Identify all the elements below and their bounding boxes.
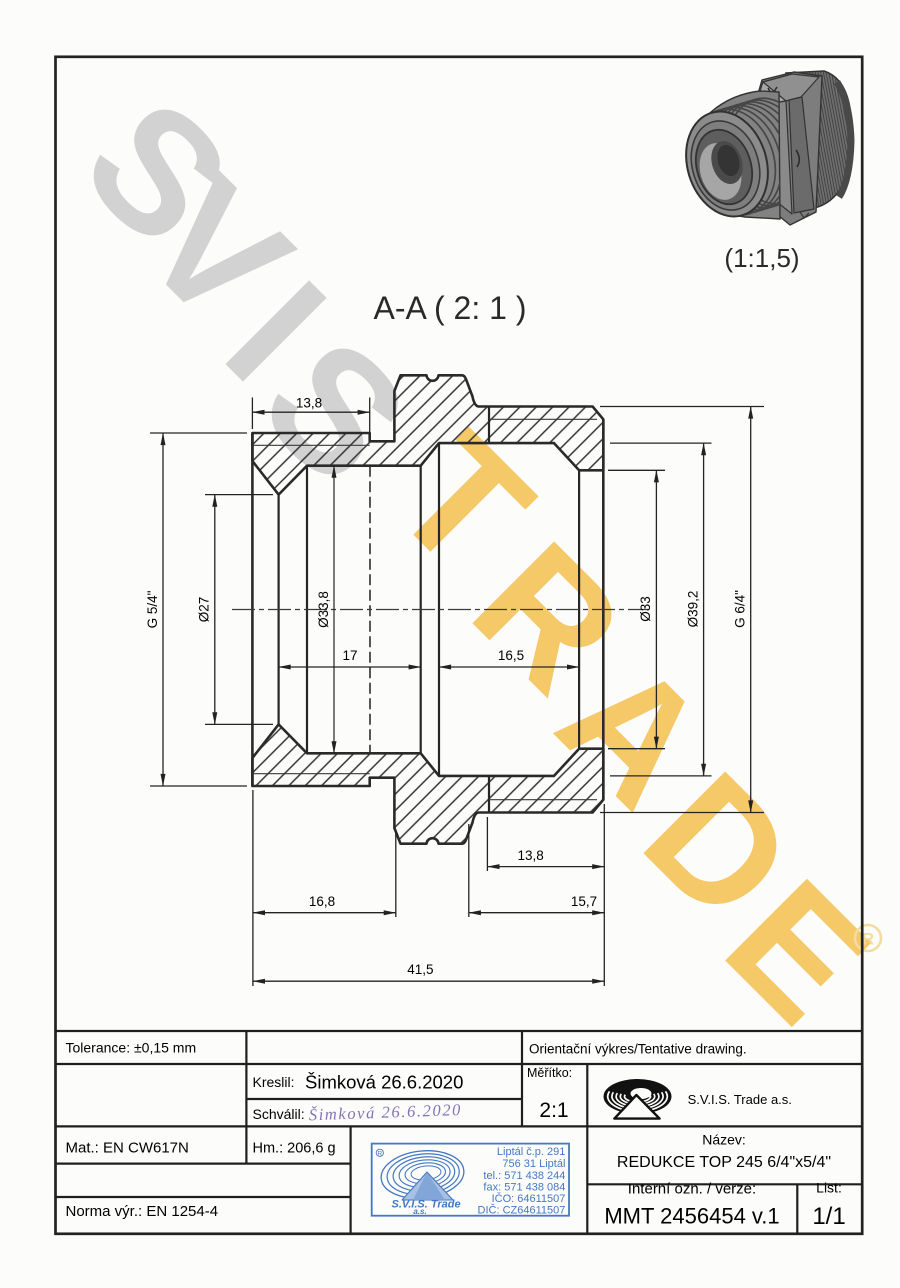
svg-text:Mat.: EN CW617N: Mat.: EN CW617N xyxy=(66,1140,189,1157)
svg-text:G 5/4": G 5/4" xyxy=(145,590,160,628)
svg-text:List:: List: xyxy=(816,1180,842,1196)
svg-text:17: 17 xyxy=(342,648,357,663)
svg-text:Ø39,2: Ø39,2 xyxy=(686,591,701,628)
svg-text:S.V.I.S. Trade a.s.: S.V.I.S. Trade a.s. xyxy=(688,1092,792,1107)
svg-text:Šimková 26.6.2020: Šimková 26.6.2020 xyxy=(308,1100,462,1124)
svg-text:16,5: 16,5 xyxy=(498,648,524,663)
svg-text:Schválil:: Schválil: xyxy=(253,1106,305,1122)
svg-text:A-A ( 2: 1 ): A-A ( 2: 1 ) xyxy=(374,290,527,326)
svg-text:tel.: 571 438 244: tel.: 571 438 244 xyxy=(483,1170,565,1182)
svg-text:Norma výr.: EN 1254-4: Norma výr.: EN 1254-4 xyxy=(66,1203,219,1220)
svg-text:(1:1,5): (1:1,5) xyxy=(724,243,799,273)
svg-text:Liptál č.p. 291: Liptál č.p. 291 xyxy=(497,1146,566,1158)
svg-text:MMT 2456454 v.1: MMT 2456454 v.1 xyxy=(604,1204,779,1229)
svg-text:Orientační výkres/Tentative dr: Orientační výkres/Tentative drawing. xyxy=(529,1042,747,1057)
svg-text:R: R xyxy=(378,1150,383,1157)
svg-text:Měřítko:: Měřítko: xyxy=(527,1066,572,1080)
svg-text:41,5: 41,5 xyxy=(407,962,433,977)
svg-text:756 31 Liptál: 756 31 Liptál xyxy=(502,1158,565,1170)
svg-text:R: R xyxy=(862,930,874,949)
svg-text:Tolerance: ±0,15 mm: Tolerance: ±0,15 mm xyxy=(66,1040,197,1056)
svg-text:REDUKCE TOP 245 6/4"x5/4": REDUKCE TOP 245 6/4"x5/4" xyxy=(617,1154,831,1171)
svg-text:16,8: 16,8 xyxy=(309,894,335,909)
svg-text:2:1: 2:1 xyxy=(539,1099,568,1122)
svg-text:Název:: Název: xyxy=(702,1132,746,1148)
svg-text:IČO: 64611507: IČO: 64611507 xyxy=(492,1192,566,1205)
svg-text:G 6/4": G 6/4" xyxy=(733,590,748,628)
svg-text:Interní ozn. / verze:: Interní ozn. / verze: xyxy=(628,1181,756,1198)
svg-text:DIČ: CZ64611507: DIČ: CZ64611507 xyxy=(478,1204,566,1217)
svg-text:fax: 571 438 084: fax: 571 438 084 xyxy=(483,1182,565,1194)
svg-text:15,7: 15,7 xyxy=(571,894,597,909)
svg-text:Kreslil:: Kreslil: xyxy=(253,1074,295,1090)
svg-text:Ø33,8: Ø33,8 xyxy=(316,591,331,628)
svg-text:a.s.: a.s. xyxy=(413,1207,426,1216)
svg-text:Šimková 26.6.2020: Šimková 26.6.2020 xyxy=(305,1072,463,1093)
svg-text:13,8: 13,8 xyxy=(296,396,322,411)
svg-text:1/1: 1/1 xyxy=(812,1203,845,1230)
svg-text:Ø33: Ø33 xyxy=(638,596,653,622)
svg-text:Hm.: 206,6 g: Hm.: 206,6 g xyxy=(253,1141,336,1157)
svg-text:Ø27: Ø27 xyxy=(197,597,212,623)
svg-text:13,8: 13,8 xyxy=(517,848,543,863)
